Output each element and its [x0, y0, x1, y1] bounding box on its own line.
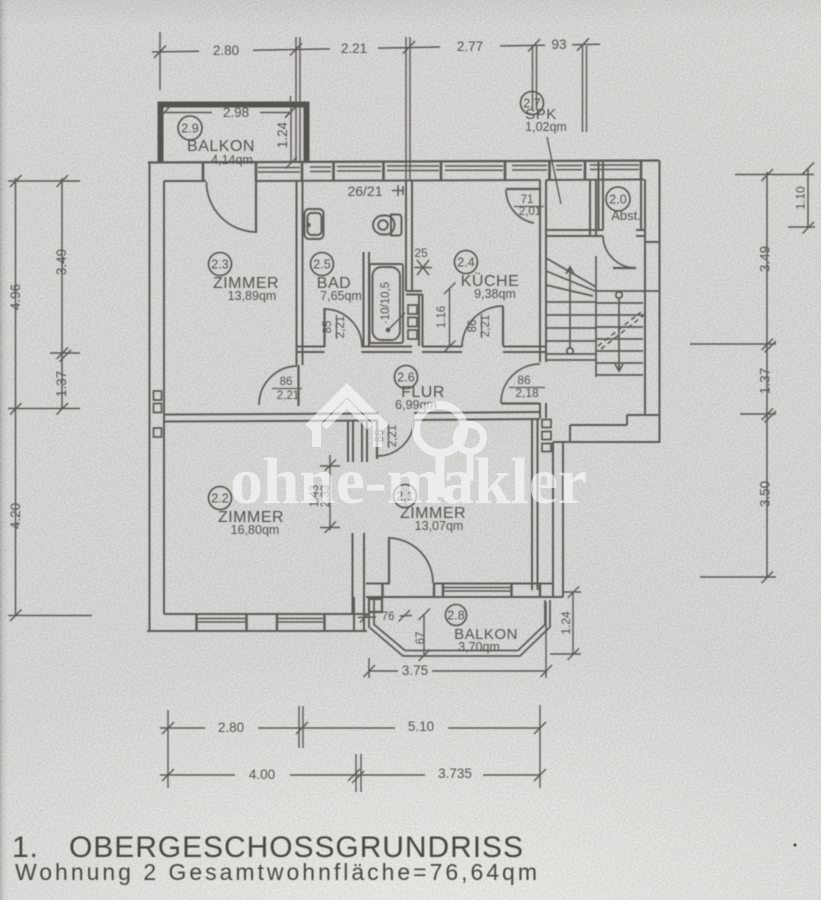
svg-text:1.37: 1.37: [758, 368, 773, 394]
svg-text:4.00: 4.00: [249, 767, 275, 782]
svg-text:1.16: 1.16: [436, 306, 448, 328]
svg-text:71: 71: [521, 194, 534, 206]
svg-text:2.2: 2.2: [211, 492, 228, 506]
svg-text:3.49: 3.49: [758, 246, 773, 272]
svg-text:3,70qm: 3,70qm: [458, 640, 500, 654]
svg-text:76: 76: [382, 611, 395, 623]
svg-text:1.10: 1.10: [794, 186, 808, 210]
svg-text:Abst.: Abst.: [611, 208, 641, 223]
svg-text:2.77: 2.77: [457, 39, 483, 54]
svg-text:2.98: 2.98: [223, 105, 249, 120]
svg-text:3.50: 3.50: [758, 481, 773, 507]
svg-text:86: 86: [467, 320, 479, 333]
svg-text:4,14qm: 4,14qm: [211, 153, 253, 167]
svg-text:1.24: 1.24: [559, 611, 573, 635]
svg-text:2.80: 2.80: [218, 720, 244, 735]
svg-text:5.10: 5.10: [408, 719, 434, 734]
svg-text:67: 67: [415, 632, 427, 645]
svg-text:2.21: 2.21: [341, 41, 367, 56]
svg-text:2.80: 2.80: [213, 43, 239, 58]
svg-text:4.96: 4.96: [8, 284, 23, 310]
svg-text:1.37: 1.37: [54, 371, 69, 397]
svg-text:3.49: 3.49: [54, 249, 69, 275]
svg-text:13,89qm: 13,89qm: [228, 289, 277, 303]
svg-text:25: 25: [414, 246, 428, 260]
svg-text:1,02qm: 1,02qm: [525, 120, 567, 134]
svg-text:ohne-makler: ohne-makler: [230, 445, 587, 518]
svg-text:2.8: 2.8: [447, 609, 464, 623]
svg-text:3.75: 3.75: [402, 663, 428, 678]
svg-text:4.20: 4.20: [8, 503, 23, 529]
svg-text:86: 86: [517, 373, 531, 387]
svg-text:86: 86: [280, 376, 293, 388]
svg-text:26/21: 26/21: [347, 183, 382, 199]
svg-text:85: 85: [322, 321, 334, 334]
svg-text:·10/10,5: ·10/10,5: [380, 282, 392, 324]
svg-text:93: 93: [551, 37, 566, 52]
svg-text:2,21: 2,21: [277, 390, 299, 402]
svg-text:2.9: 2.9: [181, 122, 198, 136]
svg-text:7,65qm: 7,65qm: [320, 289, 362, 303]
svg-text:2.0: 2.0: [609, 193, 626, 207]
svg-text:9,38qm: 9,38qm: [474, 287, 516, 301]
svg-text:16,80qm: 16,80qm: [231, 523, 280, 537]
svg-text:2,01: 2,01: [519, 206, 541, 218]
svg-text:1.24: 1.24: [275, 121, 290, 148]
svg-text:3.735: 3.735: [438, 766, 472, 781]
svg-text:2.5: 2.5: [313, 258, 330, 272]
svg-text:2.3: 2.3: [211, 258, 228, 272]
svg-text:2.6: 2.6: [397, 371, 414, 385]
svg-text:2.4: 2.4: [457, 256, 474, 270]
svg-text:13,07qm: 13,07qm: [415, 519, 464, 533]
